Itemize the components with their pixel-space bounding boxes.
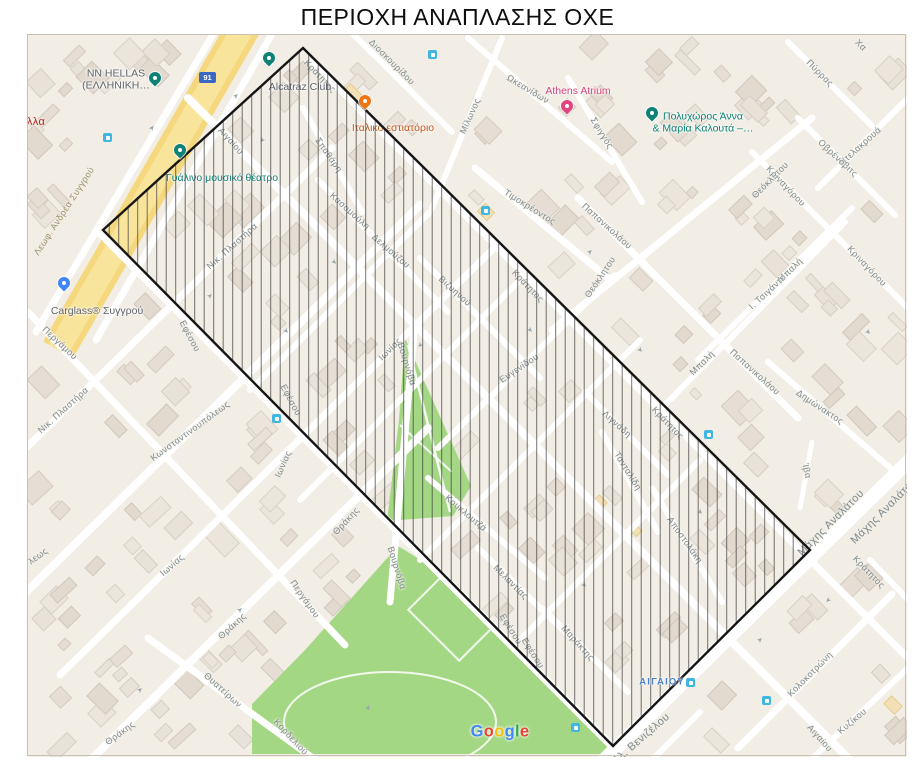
transit-icon[interactable] xyxy=(762,696,771,705)
street-label: αι xyxy=(15,56,25,68)
google-logo[interactable]: Google xyxy=(471,723,530,742)
road-number-badge: 91 xyxy=(199,72,216,83)
transit-icon[interactable] xyxy=(103,133,112,142)
page-title: ΠΕΡΙΟΧΗ ΑΝΑΠΛΑΣΗΣ ΟΧΕ xyxy=(0,4,915,31)
gyalino-mousiko-theatro-pin[interactable] xyxy=(174,144,186,156)
transit-icon[interactable] xyxy=(571,723,580,732)
map-page: ΠΕΡΙΟΧΗ ΑΝΑΠΛΑΣΗΣ ΟΧΕ 91 ΑΙΓΑΙΟΥ Λεωφ. Α… xyxy=(0,0,915,760)
redevelopment-area-polygon xyxy=(0,0,915,760)
alcatraz-club-pin[interactable] xyxy=(263,52,275,64)
map-canvas[interactable]: 91 ΑΙΓΑΙΟΥ Λεωφ. Ανδρέα ΣυγγρούαικολλαΑι… xyxy=(0,0,915,760)
transit-icon[interactable] xyxy=(686,678,695,687)
italiko-estiatorio-pin[interactable] xyxy=(359,95,371,107)
polychoros-anna-maria-kalouta-pin[interactable] xyxy=(646,107,658,119)
nn-hellas-pin[interactable] xyxy=(149,72,161,84)
transit-icon[interactable] xyxy=(272,414,281,423)
transit-icon[interactable] xyxy=(704,430,713,439)
transit-icon[interactable] xyxy=(428,50,437,59)
transit-icon[interactable] xyxy=(481,206,490,215)
station-label-aigaiou[interactable]: ΑΙΓΑΙΟΥ xyxy=(639,677,685,688)
carglass-syggrou-pin[interactable] xyxy=(58,277,70,289)
athens-atrium-pin[interactable] xyxy=(561,100,573,112)
